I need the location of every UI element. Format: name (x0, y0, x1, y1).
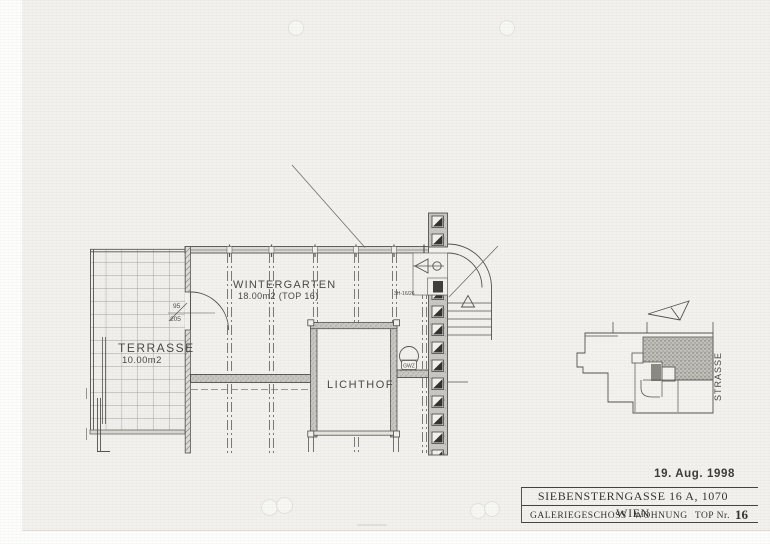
title-block-unit-number: 16 (735, 507, 748, 523)
punch-hole (276, 497, 293, 514)
gwz-label: GWZ (403, 364, 415, 370)
main-plan (87, 165, 499, 455)
street-label: STRASSE (713, 352, 723, 401)
stairs (448, 288, 492, 383)
door-height-label: 205 (170, 316, 181, 323)
wintergarten-top-wall (185, 245, 429, 258)
terrasse-area-label: 10.00m2 (122, 355, 162, 366)
title-block-unit-type: WOHNUNG (634, 508, 688, 524)
punch-hole (484, 501, 500, 517)
scan-smudge (357, 524, 387, 526)
north-arrow-icon (648, 301, 689, 320)
wintergarten-area-label: 18.00m2 (TOP 16) (238, 291, 319, 301)
title-block-floor: GALERIEGESCHOSS (530, 508, 627, 524)
title-block-address: SIEBENSTERNGASSE 16 A, 1070 WIEN (522, 488, 758, 506)
punch-hole (499, 20, 515, 36)
wintergarten-label: WINTERGARTEN (233, 279, 336, 291)
stair-direction-arrow-icon (462, 296, 475, 308)
punch-hole (288, 20, 304, 36)
site-plan (577, 301, 713, 413)
title-block: SIEBENSTERNGASSE 16 A, 1070 WIEN GALERIE… (521, 487, 758, 523)
curved-wall-corner (448, 244, 492, 288)
lichthof-label: LICHTHOF (327, 379, 394, 391)
title-block-unit-label: TOP Nr. (695, 508, 730, 524)
scanned-floor-plan-page: WINTERGARTEN 18.00m2 (TOP 16) TERRASSE 1… (0, 0, 770, 544)
floor-plan-drawing: WINTERGARTEN 18.00m2 (TOP 16) TERRASSE 1… (0, 0, 770, 544)
stair-note-label: 3H-16/26 (394, 291, 415, 297)
leader-lines (292, 165, 498, 297)
door-width-label: 95 (173, 303, 181, 310)
terrasse-label: TERRASSE (118, 341, 195, 355)
title-block-unit-row: GALERIEGESCHOSS WOHNUNG TOP Nr. 16 (522, 506, 758, 523)
date-stamp: 19. Aug. 1998 (590, 468, 735, 480)
